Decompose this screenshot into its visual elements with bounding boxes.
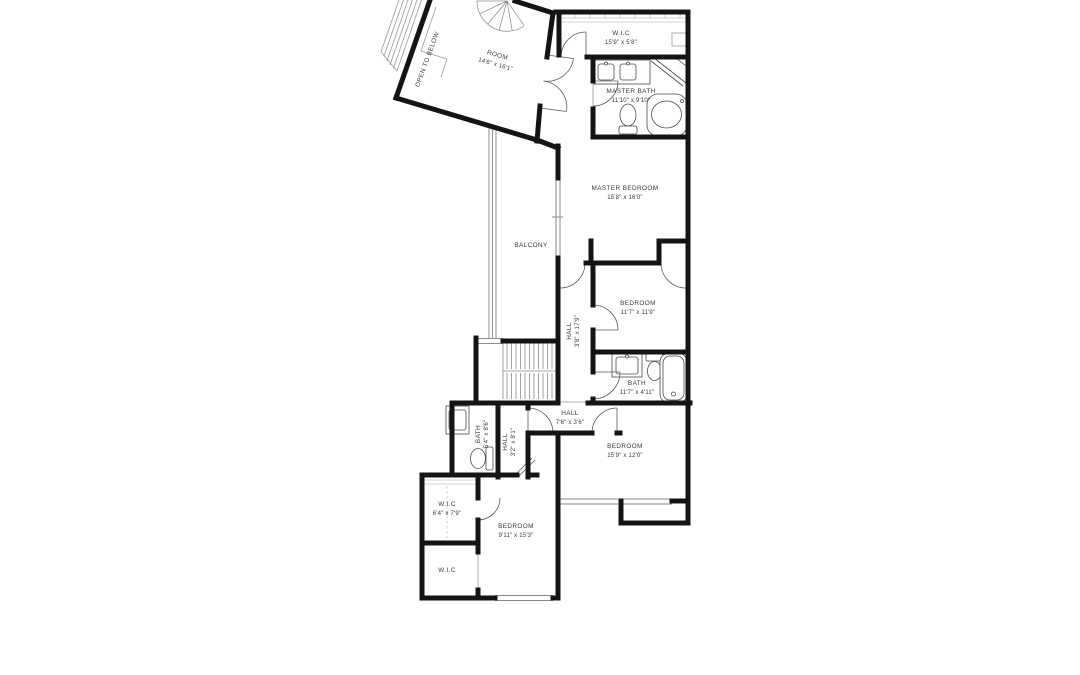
room-label-hall-small: HALL xyxy=(502,433,509,451)
spiral-staircase xyxy=(477,1,524,31)
floor-plan-canvas: ROOM 14'6" x 16'1" OPEN TO BELOW W.I.C 1… xyxy=(0,0,1080,675)
room-top-wall xyxy=(515,1,553,13)
stair-treads-lower xyxy=(507,373,552,399)
room-dims-wic-mid: 6'4" x 7'9" xyxy=(433,511,461,517)
door-master-to-bedroom2 xyxy=(661,263,686,288)
room-dims-hall-long: 3'8" x 17'9" xyxy=(575,315,581,347)
balcony-railing xyxy=(489,127,496,338)
join-wall xyxy=(537,140,558,148)
room-dims-bedroom-3: 15'9" x 12'0" xyxy=(607,453,643,459)
room-label-bath-3: BATH xyxy=(475,425,482,443)
room-label-bath-2: BATH xyxy=(628,380,646,387)
room-dims-bedroom-2: 11'7" x 11'9" xyxy=(621,310,656,316)
small-bath-vanity xyxy=(446,406,469,434)
hall-bath-vanity xyxy=(612,354,642,377)
door-wic-mid xyxy=(478,498,500,520)
balcony-sliding-door xyxy=(552,178,563,258)
wic-mid-shelving xyxy=(424,480,476,538)
bedroom3-window xyxy=(560,499,672,504)
room-label-bedroom-4: BEDROOM xyxy=(498,523,534,530)
room-dims-hall-mid: 7'6" x 3'6" xyxy=(556,420,584,426)
room-right-wall-b xyxy=(537,106,540,141)
room-left-wall xyxy=(396,0,430,98)
master-bath-toilet xyxy=(619,104,637,134)
room-label-wic-mid: W.I.C xyxy=(438,501,456,508)
door-bedroom2 xyxy=(593,305,618,330)
room-dims-wic-top: 15'9" x 5'8" xyxy=(605,40,637,46)
room-label-wic-bottom: W.I.C xyxy=(438,567,456,574)
room-dims-bedroom-4: 9'11" x 15'3" xyxy=(498,533,533,539)
bedroom4-window xyxy=(495,596,553,601)
room-label-master-bath: MASTER BATH xyxy=(606,88,655,95)
stair-window xyxy=(476,339,503,344)
room-label-bedroom-2: BEDROOM xyxy=(620,300,656,307)
staircase xyxy=(503,343,556,399)
hall-bath-tub xyxy=(660,353,687,403)
room-label-hall-long: HALL xyxy=(566,322,573,340)
room-dims-master-bath: 11'10" x 9'10" xyxy=(612,98,651,104)
master-bath-vanity xyxy=(594,60,650,84)
room-dims-hall-small: 3'2" x 8'1" xyxy=(511,428,517,456)
room-dims-room: 14'6" x 16'1" xyxy=(477,57,513,73)
door-master-bedroom xyxy=(560,263,585,288)
small-bath-toilet xyxy=(471,447,494,470)
door-hall-small xyxy=(528,408,553,433)
room-label-master-bedroom: MASTER BEDROOM xyxy=(591,185,658,192)
room-dims-master-bedroom: 15'8" x 16'0" xyxy=(607,195,643,201)
room-dims-bath-3: 5'4" x 8'6" xyxy=(484,420,490,448)
master-shower xyxy=(651,58,686,86)
room-right-wall-a xyxy=(547,13,553,57)
room-bottom-wall xyxy=(396,98,537,140)
door-bedroom3 xyxy=(592,408,617,433)
floor-plan-svg: ROOM 14'6" x 16'1" OPEN TO BELOW W.I.C 1… xyxy=(0,0,1080,675)
room-label-wic-top: W.I.C xyxy=(612,30,630,37)
double-door-room xyxy=(540,55,574,112)
door-wic-top xyxy=(561,32,586,57)
room-label-bedroom-3: BEDROOM xyxy=(607,443,643,450)
room-label-hall-mid: HALL xyxy=(561,410,579,417)
stair-treads-upper xyxy=(507,343,552,369)
room-dims-bath-2: 11'7" x 4'11" xyxy=(620,390,655,396)
master-corner-tub xyxy=(647,94,687,136)
room-label-balcony: BALCONY xyxy=(514,242,548,249)
